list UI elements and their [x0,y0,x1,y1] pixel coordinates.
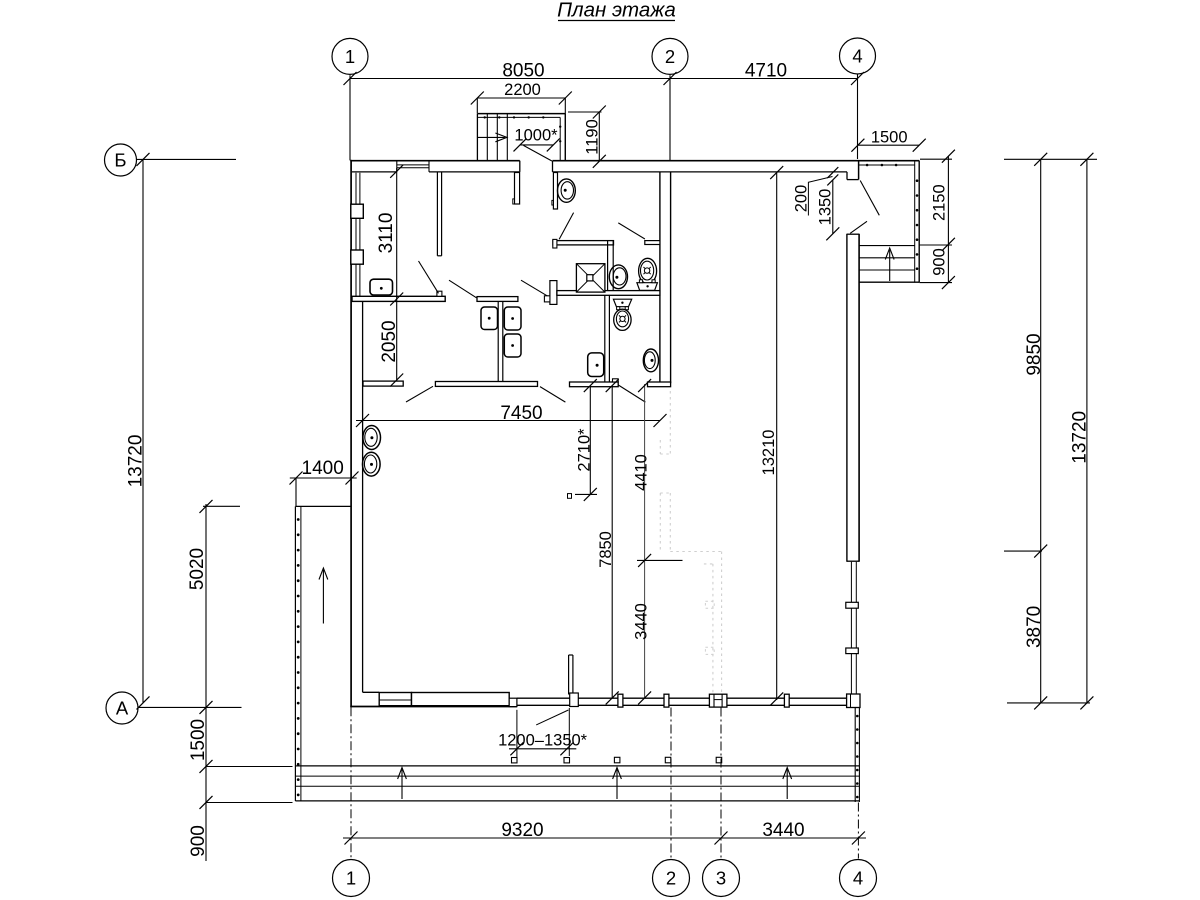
svg-text:2: 2 [666,867,676,888]
svg-text:1190: 1190 [584,119,602,154]
svg-text:3440: 3440 [762,820,804,841]
svg-text:7850: 7850 [597,531,615,568]
svg-text:А: А [116,697,129,718]
svg-text:1500: 1500 [871,129,908,147]
svg-text:8050: 8050 [502,61,544,82]
svg-text:900: 900 [931,248,949,276]
svg-text:2710*: 2710* [576,428,594,472]
svg-text:3440: 3440 [633,603,651,640]
svg-text:9850: 9850 [1024,333,1045,375]
svg-text:3110: 3110 [376,213,397,254]
svg-text:1500: 1500 [188,719,209,761]
svg-text:4: 4 [852,45,862,66]
svg-text:4710: 4710 [745,61,787,82]
svg-text:2200: 2200 [504,81,541,99]
svg-text:9320: 9320 [501,820,543,841]
svg-text:200: 200 [793,185,811,213]
svg-text:1400: 1400 [302,458,344,479]
svg-text:1: 1 [346,867,356,888]
svg-text:13720: 13720 [126,435,147,488]
svg-text:1: 1 [345,46,355,67]
svg-text:13720: 13720 [1070,411,1091,464]
svg-text:900: 900 [188,825,209,857]
svg-text:4410: 4410 [633,454,651,491]
svg-text:2150: 2150 [931,184,949,221]
svg-text:2050: 2050 [379,320,400,362]
svg-text:План этажа: План этажа [557,0,676,22]
svg-text:3870: 3870 [1024,606,1045,648]
svg-text:13210: 13210 [760,430,778,476]
svg-text:3: 3 [716,867,726,888]
svg-text:Б: Б [114,149,126,170]
svg-text:1350: 1350 [817,189,835,226]
svg-text:7450: 7450 [500,403,542,424]
svg-text:1200–1350*: 1200–1350* [498,732,588,750]
svg-text:2: 2 [665,46,675,67]
svg-text:5020: 5020 [187,548,208,590]
svg-text:1000*: 1000* [514,127,558,145]
svg-text:4: 4 [853,867,863,888]
